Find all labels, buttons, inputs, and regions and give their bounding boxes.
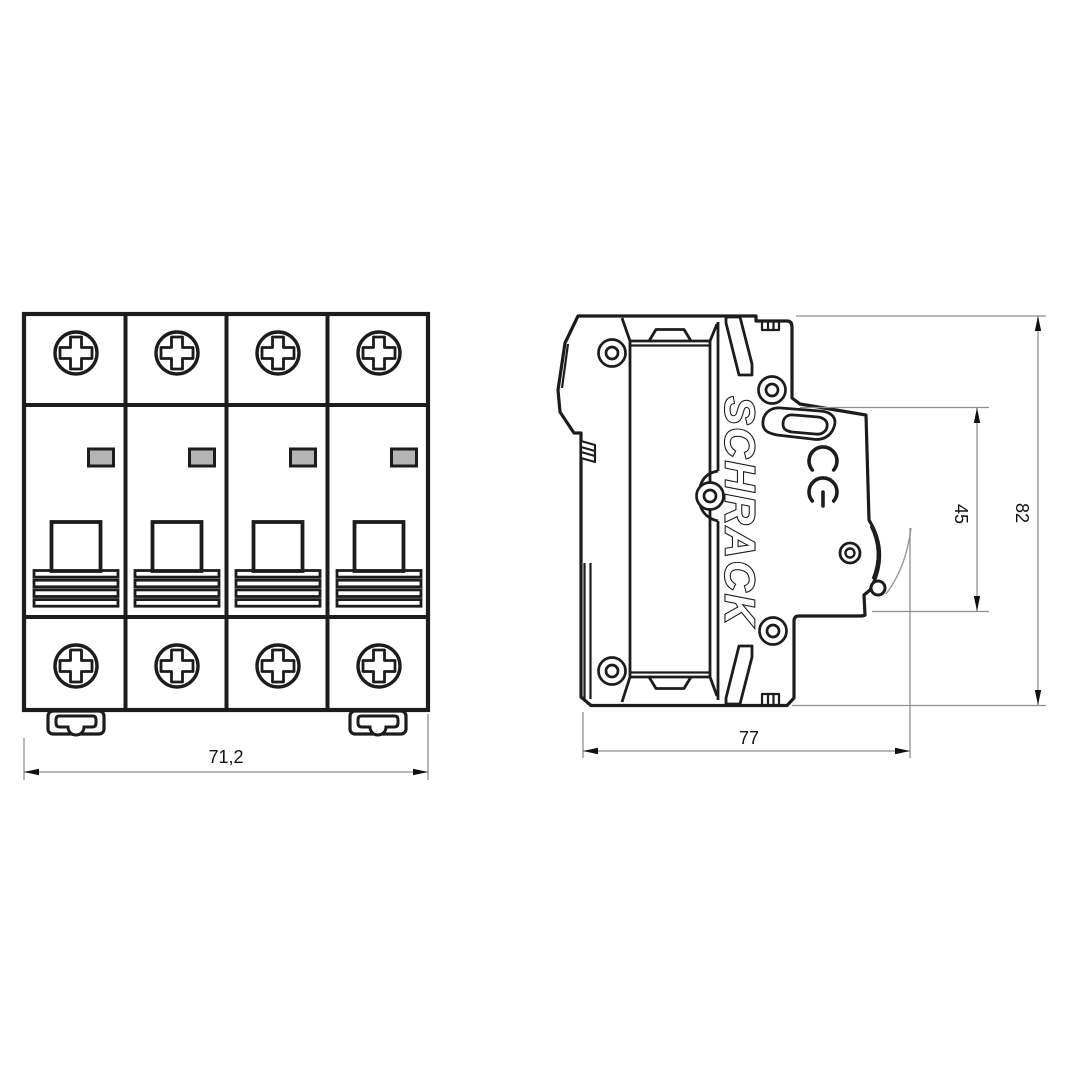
technical-drawing-canvas: SCHRACK 71,2 (0, 0, 1080, 1080)
dim-label-front-width: 71,2 (208, 747, 243, 767)
terminal-screw-icon (257, 332, 299, 374)
terminal-screw-icon (55, 645, 97, 687)
terminal-screw-icon (358, 645, 400, 687)
terminal-screw-icon (156, 332, 198, 374)
side-view: SCHRACK (558, 316, 911, 706)
din-clip-left (48, 711, 104, 735)
terminal-screw-icon (156, 645, 198, 687)
dim-label-total-height: 82 (1012, 503, 1032, 523)
toggle-swing-arc (886, 528, 911, 594)
terminal-screw-icon (358, 332, 400, 374)
toggle-tip (871, 581, 885, 595)
front-view (24, 314, 428, 735)
brand-logo: SCHRACK (717, 397, 764, 628)
rivet-icon (599, 340, 626, 367)
dim-label-face-height: 45 (951, 504, 971, 524)
handle-recess-slot (783, 415, 827, 434)
breaker-dimension-drawing: SCHRACK 71,2 (0, 0, 1080, 1080)
terminal-screw-icon (55, 332, 97, 374)
rivet-icon (599, 658, 626, 685)
pivot-screw-center (846, 549, 855, 558)
dim-label-side-depth: 77 (739, 728, 759, 748)
din-clip-right (350, 711, 406, 735)
terminal-screw-icon (257, 645, 299, 687)
